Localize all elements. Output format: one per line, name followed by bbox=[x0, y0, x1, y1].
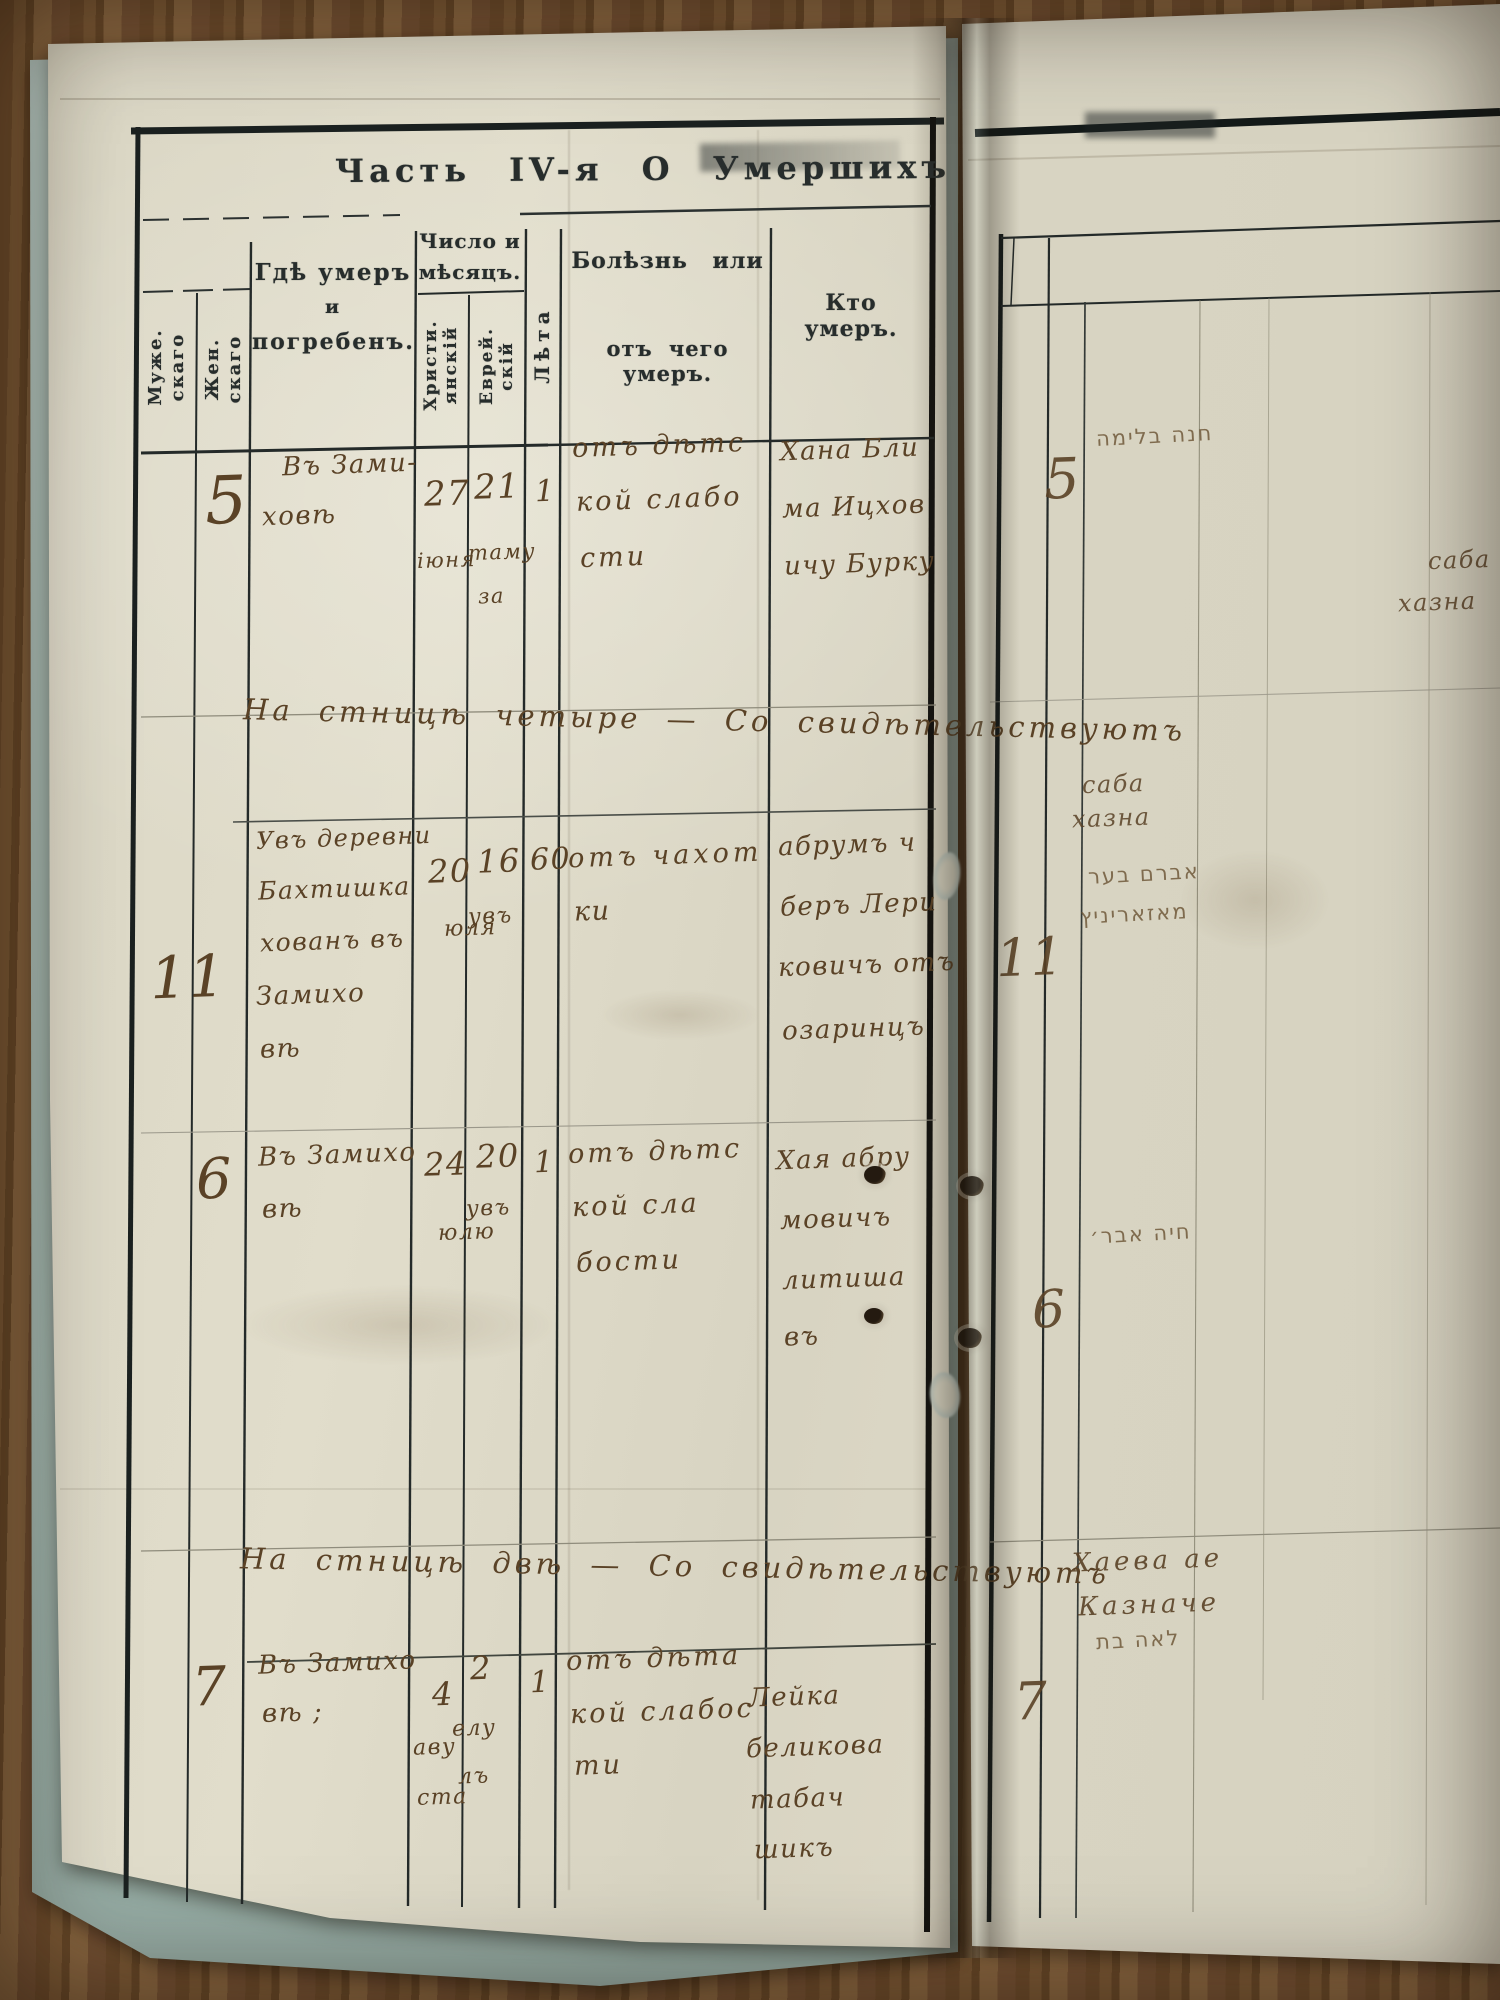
entry-r4-christian-month-line1: аву bbox=[413, 1736, 457, 1759]
column-header-male: Муже. скаго bbox=[144, 292, 190, 442]
entry-r2-where-line1: Увъ деревни bbox=[256, 823, 432, 853]
entry-r3-illness-line2: кой сла bbox=[572, 1190, 701, 1221]
entry-r1-christian-day: 27 bbox=[423, 476, 470, 512]
entry-r3-who-line2: мовичъ bbox=[780, 1204, 892, 1234]
column-header-where-line3: погребенъ. bbox=[252, 325, 414, 360]
entry-r4-jewish-month-line2: лъ bbox=[458, 1765, 490, 1788]
entry-r3-illness-line3: бости bbox=[576, 1246, 683, 1277]
entry-r4-where-line2: вѣ ; bbox=[262, 1699, 324, 1727]
entry-r2-illness-line2: ки bbox=[574, 897, 611, 925]
entry-r1-where-line2: ховѣ bbox=[262, 502, 337, 531]
column-header-age: Лѣта bbox=[529, 250, 555, 440]
right-entry-r3-number: 6 bbox=[1031, 1283, 1067, 1336]
entry-r3-jewish-day: 20 bbox=[475, 1139, 520, 1173]
column-header-christian-line2: янскій bbox=[441, 326, 461, 405]
entry-r2-where-line4: Замихо bbox=[256, 980, 366, 1010]
entry-r3-who-line4: въ bbox=[784, 1323, 820, 1350]
right-entry-r4-number: 7 bbox=[1013, 1675, 1049, 1728]
column-header-where-line1: Гдѣ умеръ bbox=[252, 255, 414, 290]
column-header-illness-line1: Болѣзнь или bbox=[565, 248, 770, 274]
entry-r1-jewish-day: 21 bbox=[473, 469, 520, 505]
entry-r2-who-line2: беръ Лери bbox=[780, 889, 938, 920]
entry-r3-illness-line1: отъ дѣтс bbox=[568, 1135, 743, 1168]
entry-r2-christian-day: 20 bbox=[427, 854, 472, 888]
punch-hole bbox=[960, 1176, 984, 1196]
right-cursive-edge1: саба bbox=[1428, 547, 1492, 573]
right-cursive-mid2: хазна bbox=[1072, 805, 1151, 832]
entry-r1-number: 5 bbox=[204, 467, 250, 534]
entry-r2-where-line5: вѣ bbox=[260, 1035, 302, 1062]
column-header-jewish-line1: Еврей. bbox=[477, 327, 497, 405]
entry-r2-jewish-day: 16 bbox=[476, 844, 521, 878]
entry-r1-who-line2: ма Ицхов bbox=[782, 492, 926, 523]
entry-r4-christian-day: 4 bbox=[431, 1678, 454, 1711]
entry-r4-age: 1 bbox=[529, 1668, 551, 1699]
entry-r4-jewish-day: 2 bbox=[469, 1652, 492, 1685]
entry-r2-jewish-month: увъ bbox=[468, 905, 513, 929]
entry-r1-illness-line3: сти bbox=[580, 543, 648, 572]
entry-r4-illness-line2: кой слабос bbox=[570, 1695, 755, 1728]
entry-r3-christian-day: 24 bbox=[423, 1147, 468, 1181]
entry-r2-who-line4: озаринцъ bbox=[782, 1014, 926, 1045]
entry-r1-illness-line2: кой слабо bbox=[576, 483, 743, 516]
entry-r4-christian-month-line2: ста bbox=[417, 1786, 469, 1810]
entry-r3-age: 1 bbox=[533, 1148, 555, 1179]
entry-r3-where-line2: вѣ bbox=[262, 1195, 304, 1222]
right-cursive-mid1: саба bbox=[1082, 771, 1146, 797]
entry-r1-illness-line1: отъ дѣтс bbox=[572, 429, 747, 462]
entry-r2-who-line1: абрумъ ч bbox=[778, 830, 917, 861]
entry-r1-age: 1 bbox=[534, 477, 556, 508]
column-header-female-line1: Жен. bbox=[202, 338, 224, 401]
entry-r4-illness-line3: ти bbox=[574, 1751, 624, 1780]
right-attestation-fragment2: Казначе bbox=[1078, 1590, 1221, 1621]
entry-r4-who-line4: шикъ bbox=[754, 1835, 835, 1864]
entry-r2-number: 11 bbox=[149, 947, 228, 1008]
hebrew-script-line: לאה בת bbox=[1095, 1626, 1180, 1654]
photographed-register-page: Часть IV-я О Умершихъ Муже. скаго Жен. с… bbox=[0, 0, 1500, 2000]
column-header-female: Жен. скаго bbox=[201, 294, 247, 444]
column-header-jewish: Еврей. скій bbox=[474, 286, 520, 446]
entry-r3-jewish-month: увъ bbox=[466, 1197, 511, 1221]
entry-r1-where-line1: Въ Зами- bbox=[282, 450, 418, 481]
column-header-age-line1: Лѣта bbox=[530, 306, 554, 383]
column-header-date-line2: мѣсяцъ. bbox=[416, 257, 524, 288]
right-entry-r2-number: 11 bbox=[995, 931, 1066, 985]
entry-r4-who-line2: беликова bbox=[746, 1732, 885, 1763]
column-header-christian-line1: Христи. bbox=[421, 319, 441, 410]
entry-r4-where-line1: Въ Замихо bbox=[258, 1647, 417, 1679]
entry-r3-who-line3: литиша bbox=[782, 1264, 907, 1294]
punch-hole bbox=[958, 1328, 982, 1348]
column-header-female-line2: скаго bbox=[224, 335, 246, 404]
ink-smudge bbox=[1085, 112, 1215, 138]
column-header-illness-line2: отъ чего умеръ. bbox=[560, 336, 775, 386]
ink-bleedthrough bbox=[600, 990, 760, 1040]
entry-r1-who-line1: Хана Бли bbox=[780, 435, 920, 466]
entry-r2-age: 60 bbox=[529, 844, 571, 875]
entry-r4-who-line3: табач bbox=[750, 1784, 846, 1813]
column-header-where: Гдѣ умеръ и погребенъ. bbox=[252, 255, 414, 360]
entry-r3-number: 6 bbox=[195, 1151, 234, 1208]
column-header-male-line2: скаго bbox=[167, 333, 189, 402]
column-header-male-line1: Муже. bbox=[145, 328, 167, 405]
entry-r2-who-line3: ковичъ отъ bbox=[778, 949, 956, 981]
column-header-jewish-line2: скій bbox=[497, 341, 517, 391]
entry-r2-where-line3: хованъ въ bbox=[260, 925, 405, 955]
entry-r3-who-line1: Хая абру bbox=[776, 1144, 911, 1175]
entry-r4-who-line1: Лейка bbox=[748, 1682, 841, 1711]
entry-r1-jewish-month-line2: за bbox=[478, 586, 506, 608]
entry-r3-where-line1: Въ Замихо bbox=[258, 1139, 417, 1171]
entry-r2-illness-line1: отъ чахот bbox=[568, 839, 763, 873]
right-entry-r1-number: 5 bbox=[1043, 451, 1082, 508]
entry-r4-jewish-month-line1: елу bbox=[452, 1717, 497, 1741]
punch-hole bbox=[864, 1166, 886, 1184]
entry-r1-who-line3: ичу Бурку bbox=[784, 548, 936, 579]
right-attestation-fragment1: Хаева ае bbox=[1072, 1545, 1224, 1576]
right-cursive-edge2: хазна bbox=[1398, 589, 1477, 616]
ink-bleedthrough bbox=[240, 1285, 560, 1365]
ink-bleedthrough bbox=[1180, 850, 1330, 950]
column-header-where-line2: и bbox=[252, 290, 414, 325]
entry-r2-where-line2: Бахтишка bbox=[258, 873, 411, 903]
column-header-christian: Христи. янскій bbox=[418, 285, 464, 445]
column-header-who: Кто умеръ. bbox=[772, 290, 930, 342]
entry-r4-illness-line1: отъ дѣта bbox=[566, 1642, 742, 1675]
entry-r1-jewish-month-line1: таму bbox=[468, 541, 537, 564]
column-header-date-group: Число и мѣсяцъ. bbox=[416, 226, 524, 288]
entry-r4-number: 7 bbox=[191, 1659, 229, 1714]
column-header-date-line1: Число и bbox=[416, 226, 524, 257]
entry-r3-christian-month: юлю bbox=[438, 1221, 496, 1245]
punch-hole bbox=[864, 1308, 884, 1324]
ink-smudge bbox=[700, 140, 900, 171]
